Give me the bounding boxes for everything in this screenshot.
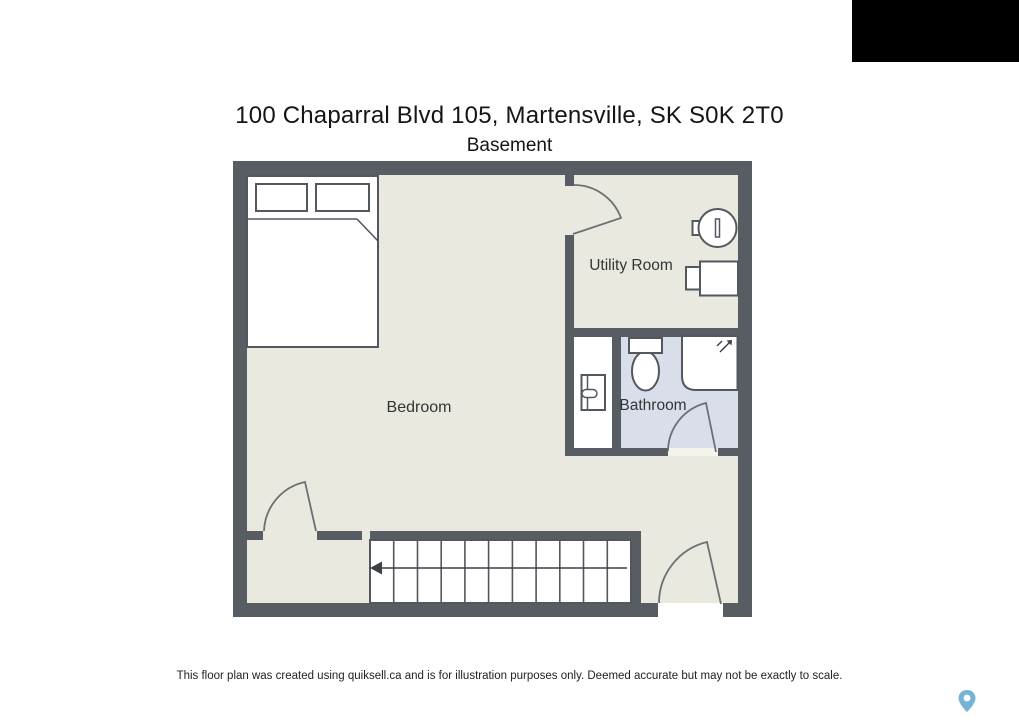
floor-plan — [233, 161, 752, 617]
shower — [682, 336, 738, 390]
floor-plan-drawing — [233, 161, 752, 617]
floor-plan-page: 100 Chaparral Blvd 105, Martensville, SK… — [0, 0, 1019, 720]
redacted-logo-area — [852, 0, 1019, 62]
vanity-cabinet — [582, 375, 606, 410]
bathroom-door-threshold — [668, 448, 718, 456]
toilet — [629, 338, 662, 391]
floor-subtitle: Basement — [0, 135, 1019, 157]
bedroom-label: Bedroom — [387, 399, 452, 417]
map-pin-icon — [957, 689, 977, 713]
bed — [247, 176, 378, 347]
stairs — [370, 540, 631, 603]
page-title: 100 Chaparral Blvd 105, Martensville, SK… — [0, 102, 1019, 130]
washer — [686, 262, 738, 296]
disclaimer-text: This floor plan was created using quikse… — [0, 670, 1019, 682]
pillow — [316, 184, 369, 211]
exterior-door-threshold — [658, 603, 723, 617]
bathroom-label: Bathroom — [619, 397, 686, 415]
utility-room-label: Utility Room — [589, 257, 673, 275]
pillow — [256, 184, 307, 211]
